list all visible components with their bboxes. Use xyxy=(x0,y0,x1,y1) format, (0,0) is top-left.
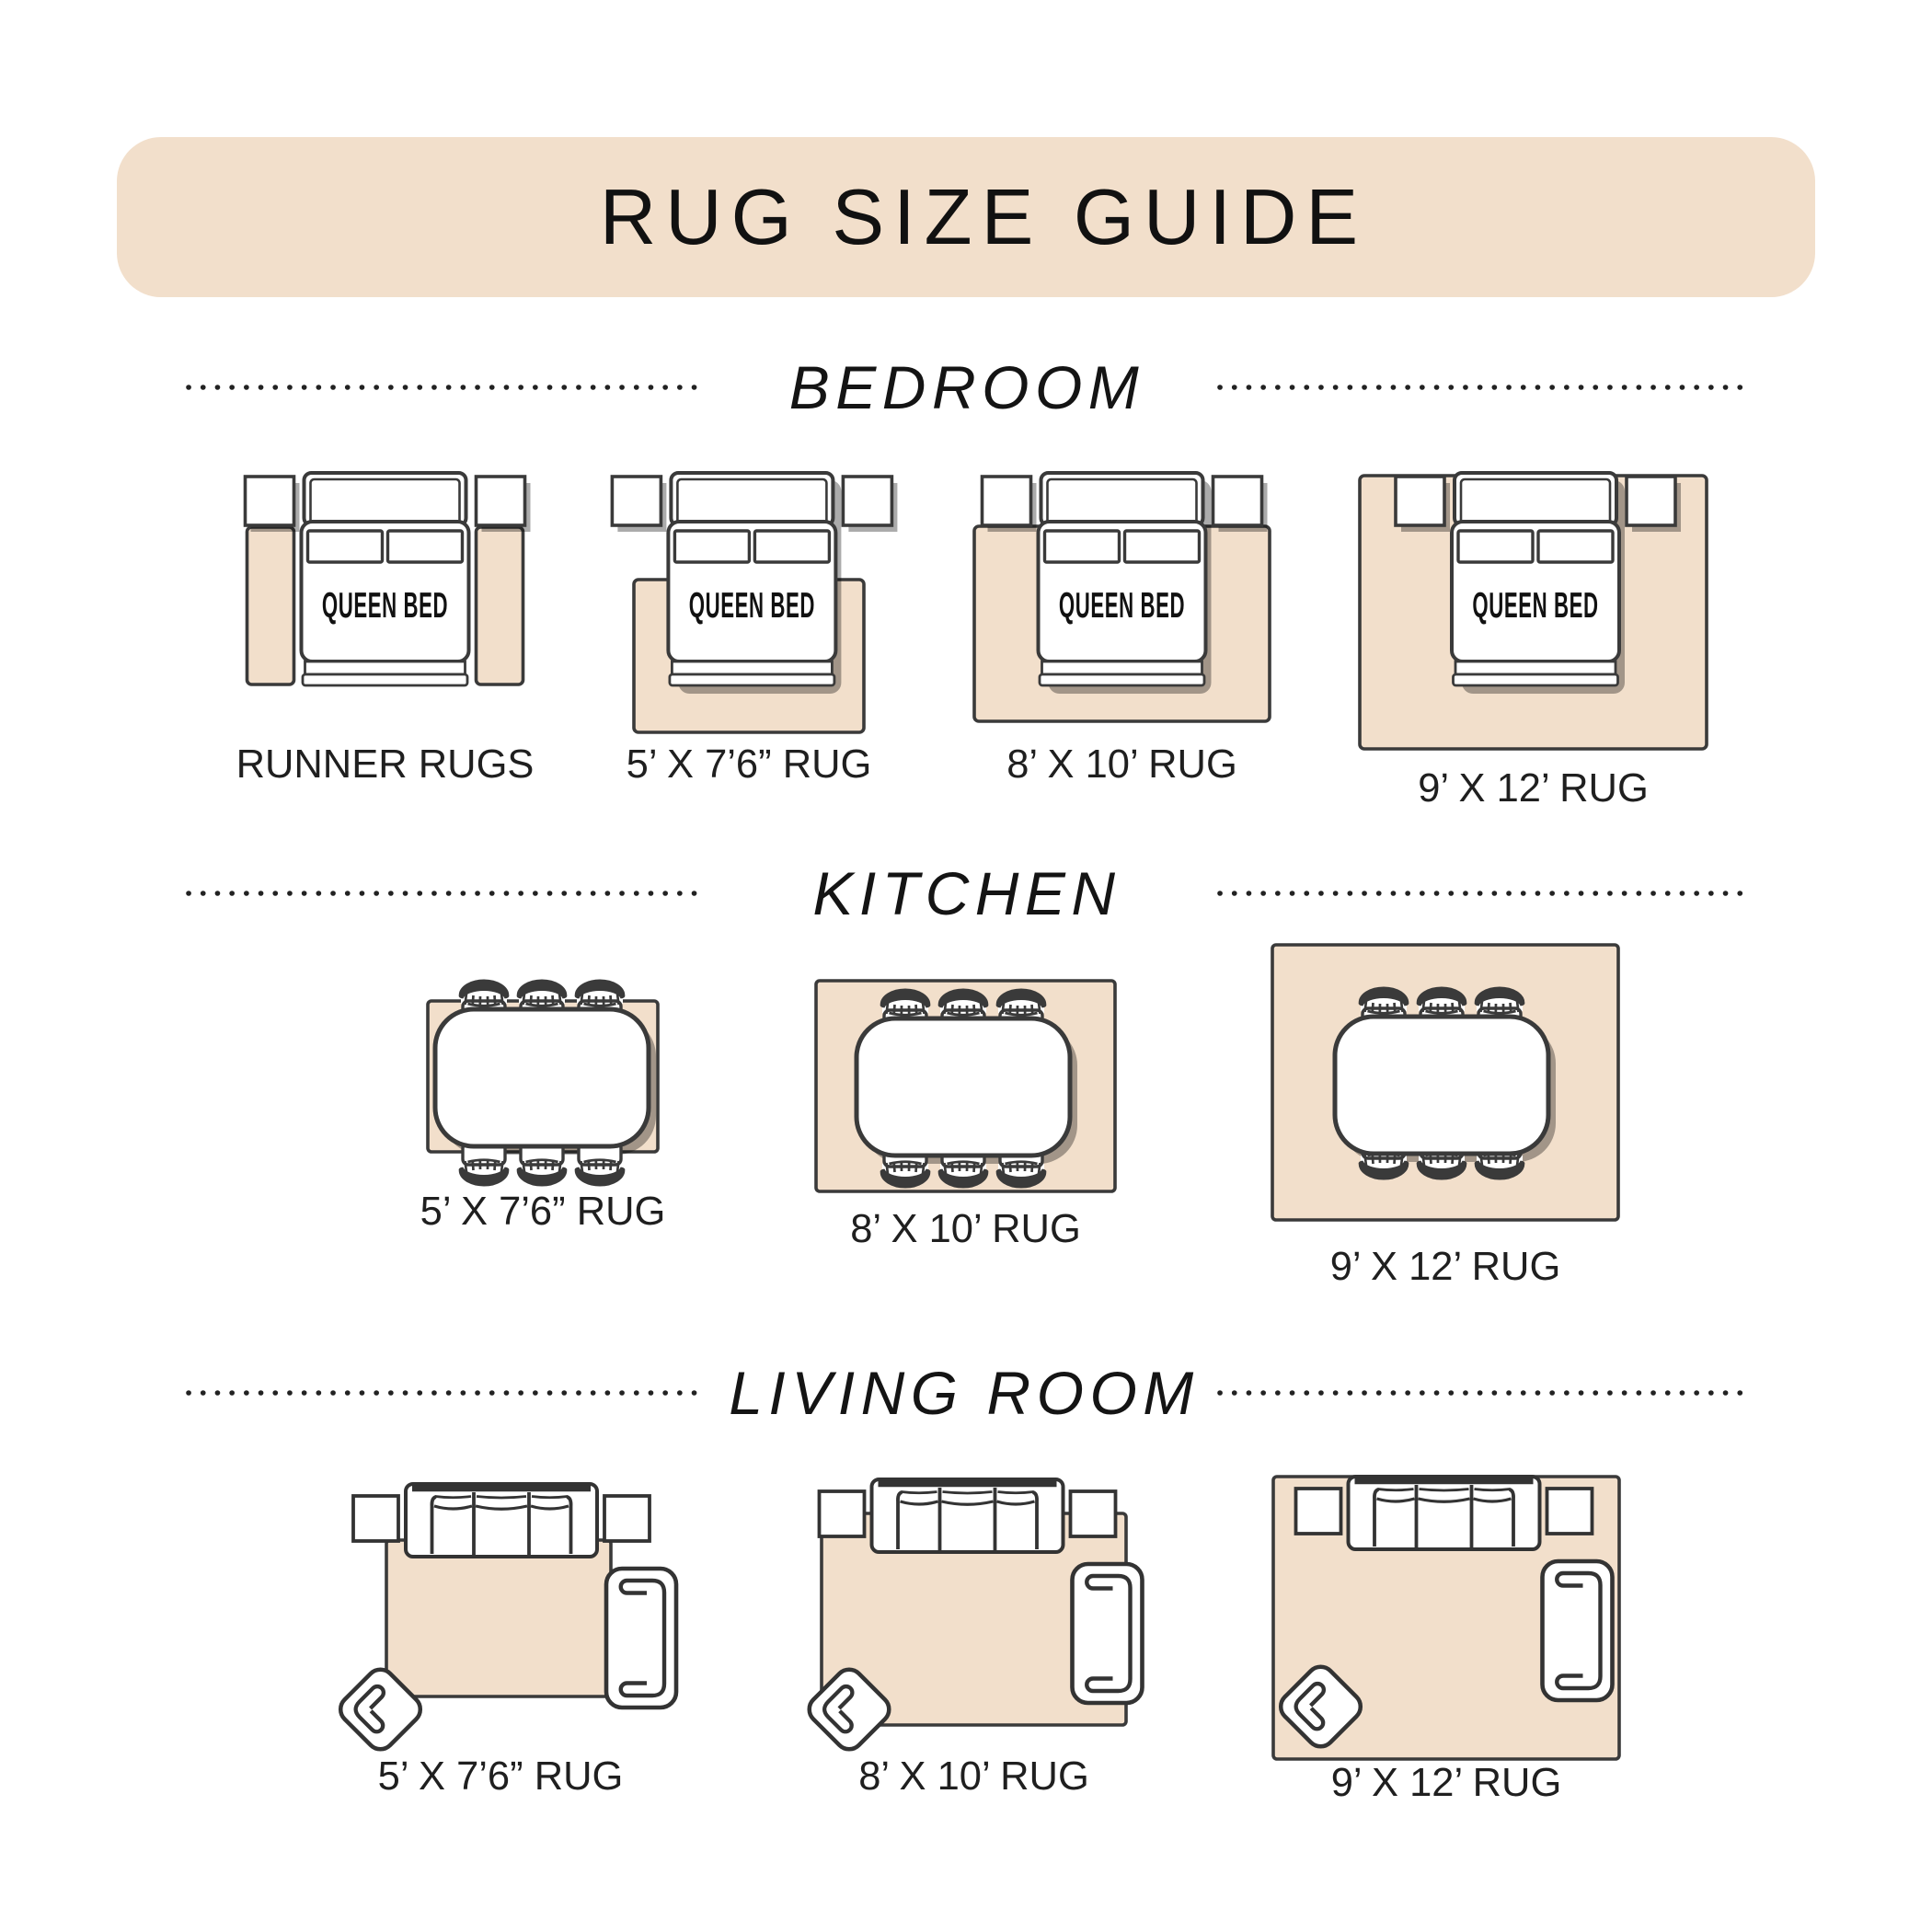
svg-text:8’ X 10’ RUG: 8’ X 10’ RUG xyxy=(858,1754,1089,1799)
svg-text:8’ X 10’ RUG: 8’ X 10’ RUG xyxy=(850,1207,1081,1251)
svg-text:LIVING ROOM: LIVING ROOM xyxy=(729,1359,1200,1427)
svg-text:KITCHEN: KITCHEN xyxy=(812,859,1121,927)
svg-text:5’ X 7’6” RUG: 5’ X 7’6” RUG xyxy=(420,1190,666,1234)
svg-text:8’ X 10’ RUG: 8’ X 10’ RUG xyxy=(1006,742,1237,787)
svg-text:5’ X 7’6” RUG: 5’ X 7’6” RUG xyxy=(627,742,872,787)
svg-text:RUNNER RUGS: RUNNER RUGS xyxy=(236,742,535,787)
svg-text:9’ X 12’ RUG: 9’ X 12’ RUG xyxy=(1418,766,1649,811)
svg-text:5’ X 7’6” RUG: 5’ X 7’6” RUG xyxy=(378,1754,624,1799)
svg-text:9’ X 12’ RUG: 9’ X 12’ RUG xyxy=(1331,1761,1562,1805)
svg-text:BEDROOM: BEDROOM xyxy=(789,353,1145,421)
svg-text:9’ X 12’ RUG: 9’ X 12’ RUG xyxy=(1330,1245,1561,1289)
svg-text:RUG SIZE GUIDE: RUG SIZE GUIDE xyxy=(600,174,1367,261)
